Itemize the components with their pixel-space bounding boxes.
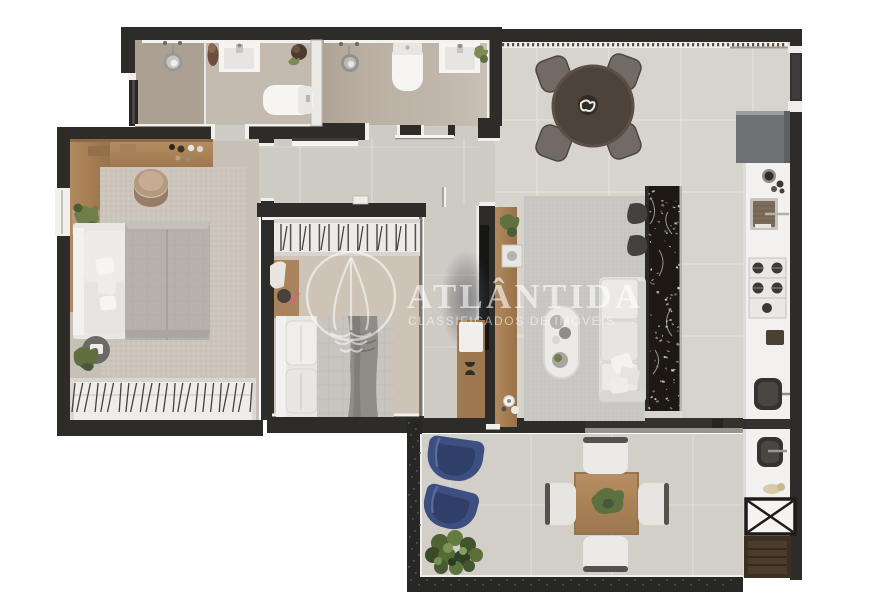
svg-text:ATLÂNTIDA: ATLÂNTIDA [407,276,643,316]
svg-text:CLASSIFICADOS DE IMÓVEIS: CLASSIFICADOS DE IMÓVEIS [408,313,616,328]
